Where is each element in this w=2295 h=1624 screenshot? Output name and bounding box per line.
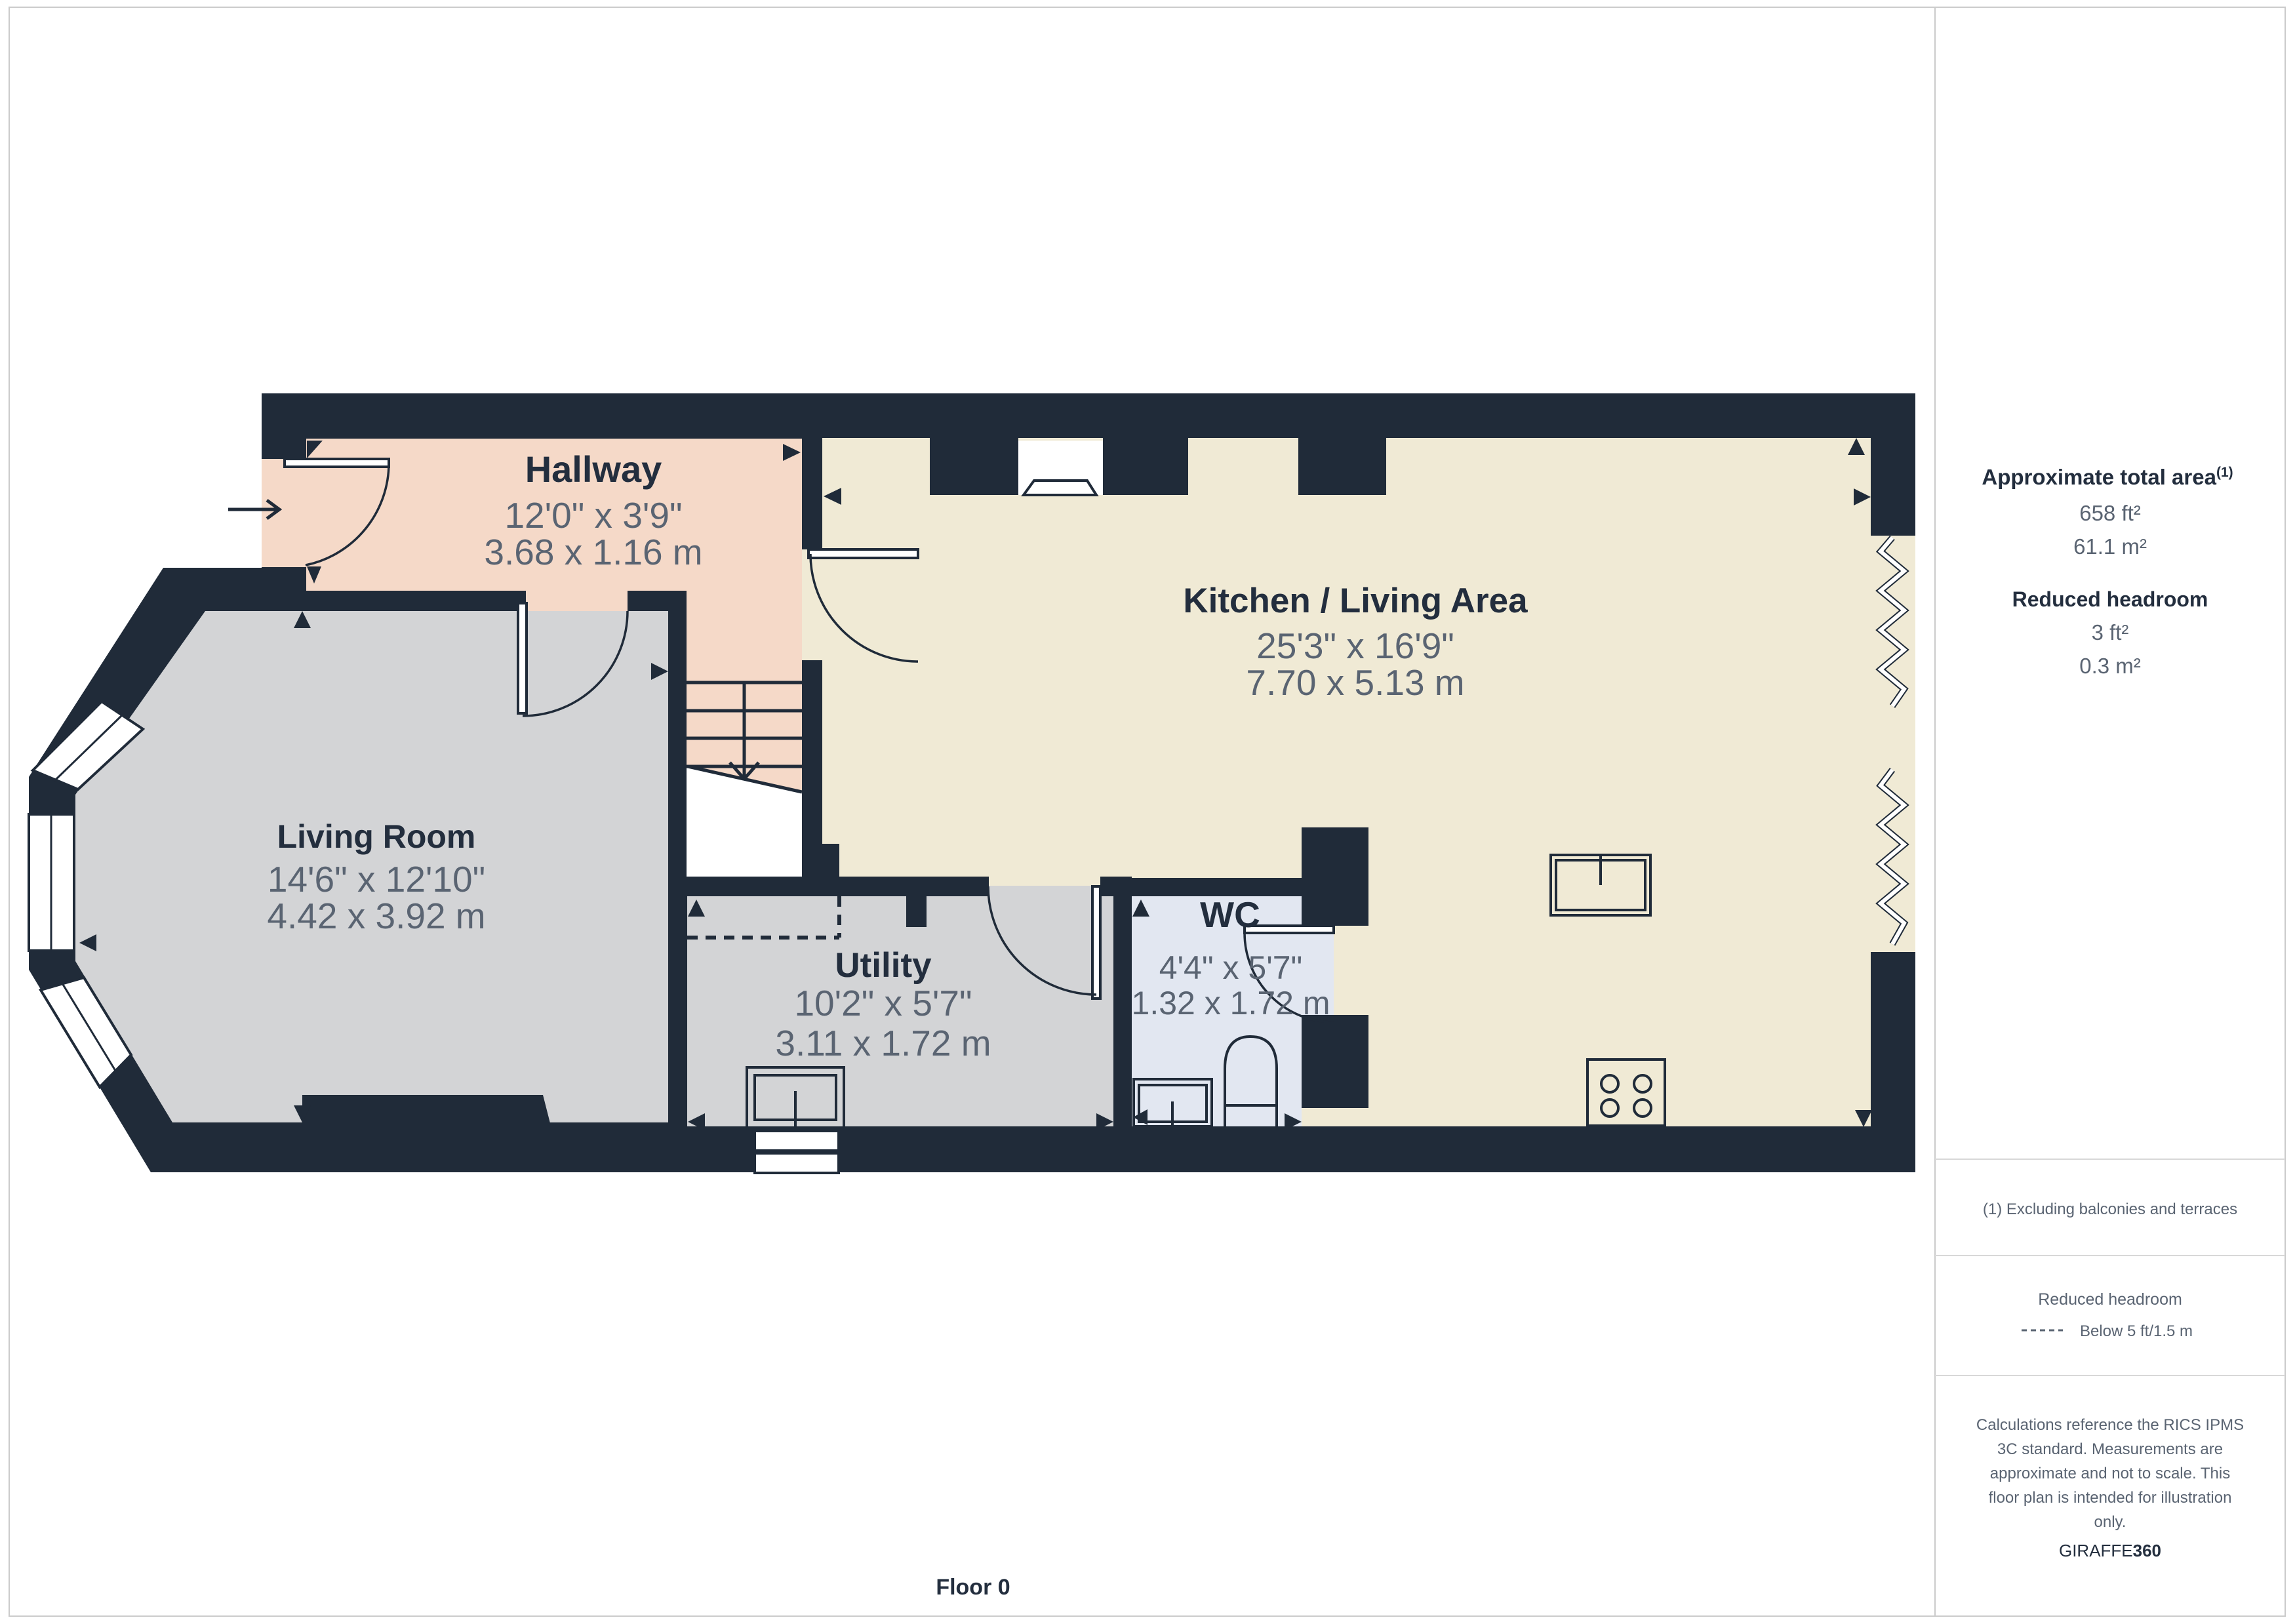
svg-text:Hallway: Hallway (525, 448, 662, 490)
svg-text:10'2" x 5'7": 10'2" x 5'7" (794, 983, 972, 1023)
svg-text:14'6" x 12'10": 14'6" x 12'10" (268, 859, 485, 900)
svg-text:61.1 m²: 61.1 m² (2073, 534, 2147, 559)
svg-text:Living Room: Living Room (277, 818, 476, 855)
svg-text:3.68 x 1.16 m: 3.68 x 1.16 m (484, 532, 702, 572)
svg-text:Reduced headroom: Reduced headroom (2012, 587, 2208, 611)
svg-text:Calculations reference the RIC: Calculations reference the RICS IPMS (1976, 1416, 2244, 1434)
svg-text:7.70 x 5.13 m: 7.70 x 5.13 m (1246, 662, 1464, 703)
svg-text:WC: WC (1200, 894, 1260, 935)
svg-text:658 ft²: 658 ft² (2079, 501, 2141, 525)
svg-text:(1) Excluding balconies and te: (1) Excluding balconies and terraces (1983, 1200, 2237, 1218)
svg-text:GIRAFFE360: GIRAFFE360 (2059, 1541, 2161, 1560)
svg-text:3.11 x 1.72 m: 3.11 x 1.72 m (775, 1023, 991, 1063)
svg-text:Floor 0: Floor 0 (936, 1575, 1010, 1600)
svg-text:only.: only. (2094, 1513, 2126, 1531)
svg-text:Kitchen / Living Area: Kitchen / Living Area (1183, 582, 1528, 620)
svg-text:12'0" x 3'9": 12'0" x 3'9" (504, 495, 682, 536)
svg-text:4'4" x 5'7": 4'4" x 5'7" (1159, 949, 1303, 986)
svg-text:floor plan is intended for ill: floor plan is intended for illustration (1989, 1489, 2232, 1507)
svg-text:25'3" x 16'9": 25'3" x 16'9" (1256, 625, 1454, 666)
svg-text:3 ft²: 3 ft² (2092, 620, 2129, 644)
svg-text:Approximate total area(1): Approximate total area(1) (1982, 465, 2233, 489)
svg-text:Reduced headroom: Reduced headroom (2038, 1290, 2182, 1309)
svg-text:1.32 x 1.72 m: 1.32 x 1.72 m (1132, 985, 1330, 1021)
svg-text:approximate and not to scale.: approximate and not to scale. This (1990, 1465, 2230, 1482)
svg-text:Below 5 ft/1.5 m: Below 5 ft/1.5 m (2080, 1322, 2193, 1340)
svg-text:3C standard. Measurements are: 3C standard. Measurements are (1997, 1440, 2223, 1458)
svg-text:4.42 x 3.92 m: 4.42 x 3.92 m (267, 896, 485, 936)
svg-text:Utility: Utility (835, 946, 932, 985)
svg-text:0.3 m²: 0.3 m² (2079, 654, 2141, 678)
